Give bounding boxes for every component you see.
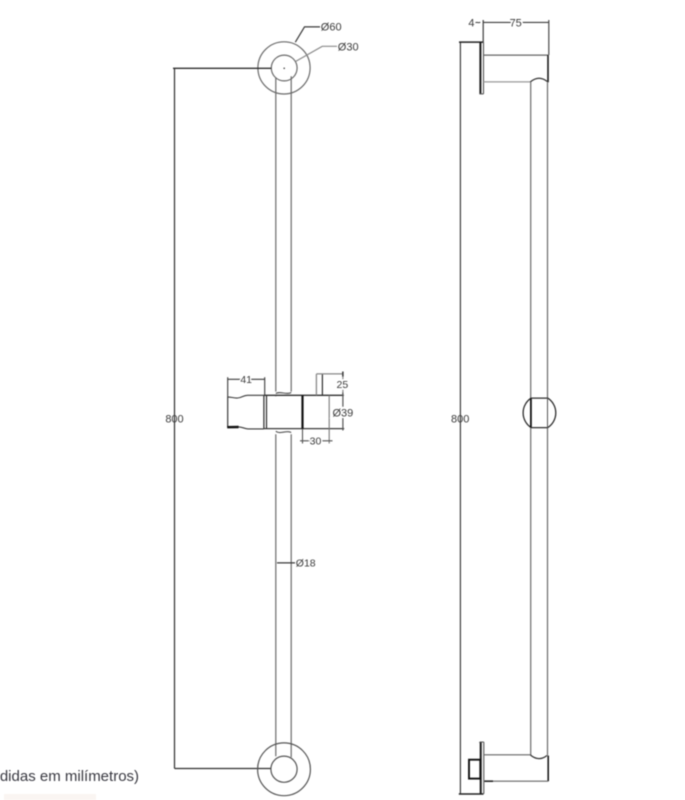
svg-text:Ø60: Ø60: [321, 22, 342, 34]
svg-text:4: 4: [468, 17, 474, 29]
svg-text:Ø39: Ø39: [333, 407, 354, 419]
svg-text:Ø30: Ø30: [338, 41, 359, 53]
svg-text:41: 41: [240, 374, 252, 386]
svg-text:25: 25: [337, 379, 349, 391]
svg-text:800: 800: [165, 413, 183, 425]
svg-text:Ø18: Ø18: [296, 558, 316, 570]
svg-text:800: 800: [451, 414, 469, 426]
svg-text:30: 30: [310, 436, 322, 448]
svg-text:75: 75: [510, 17, 522, 29]
